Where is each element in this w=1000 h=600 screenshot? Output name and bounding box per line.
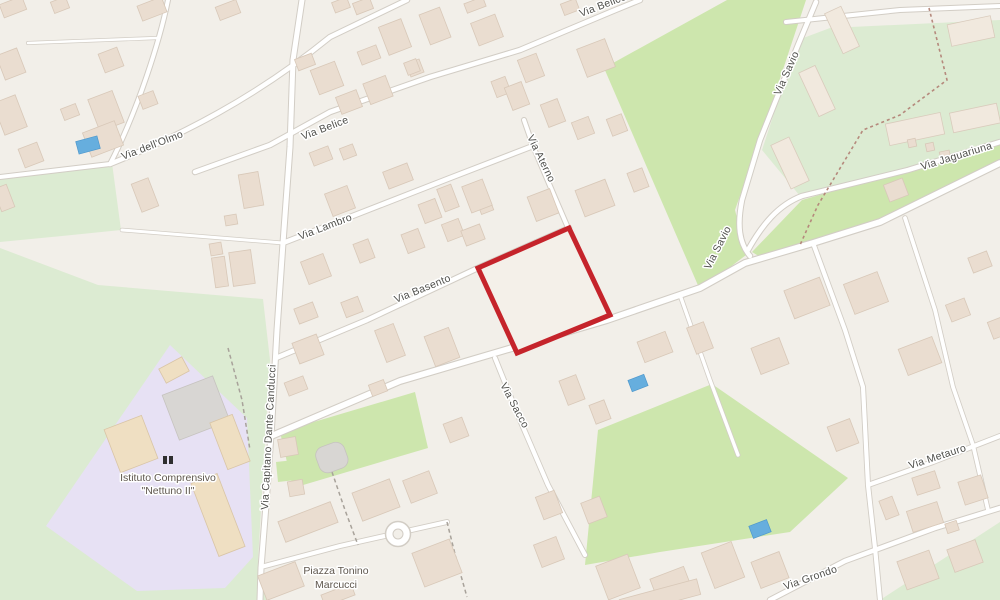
roundabout [386,522,411,547]
map-canvas[interactable]: Via dell'Olmo Via Belice Via Belice Via … [0,0,1000,600]
street-map[interactable]: Via dell'Olmo Via Belice Via Belice Via … [0,0,1000,600]
school-label-line2: "Nettuno II" [142,485,195,497]
piazza-label-line2: Marcucci [315,579,357,591]
school-label-line1: Istituto Comprensivo [120,472,216,484]
piazza-label-line1: Piazza Tonino [303,565,368,577]
